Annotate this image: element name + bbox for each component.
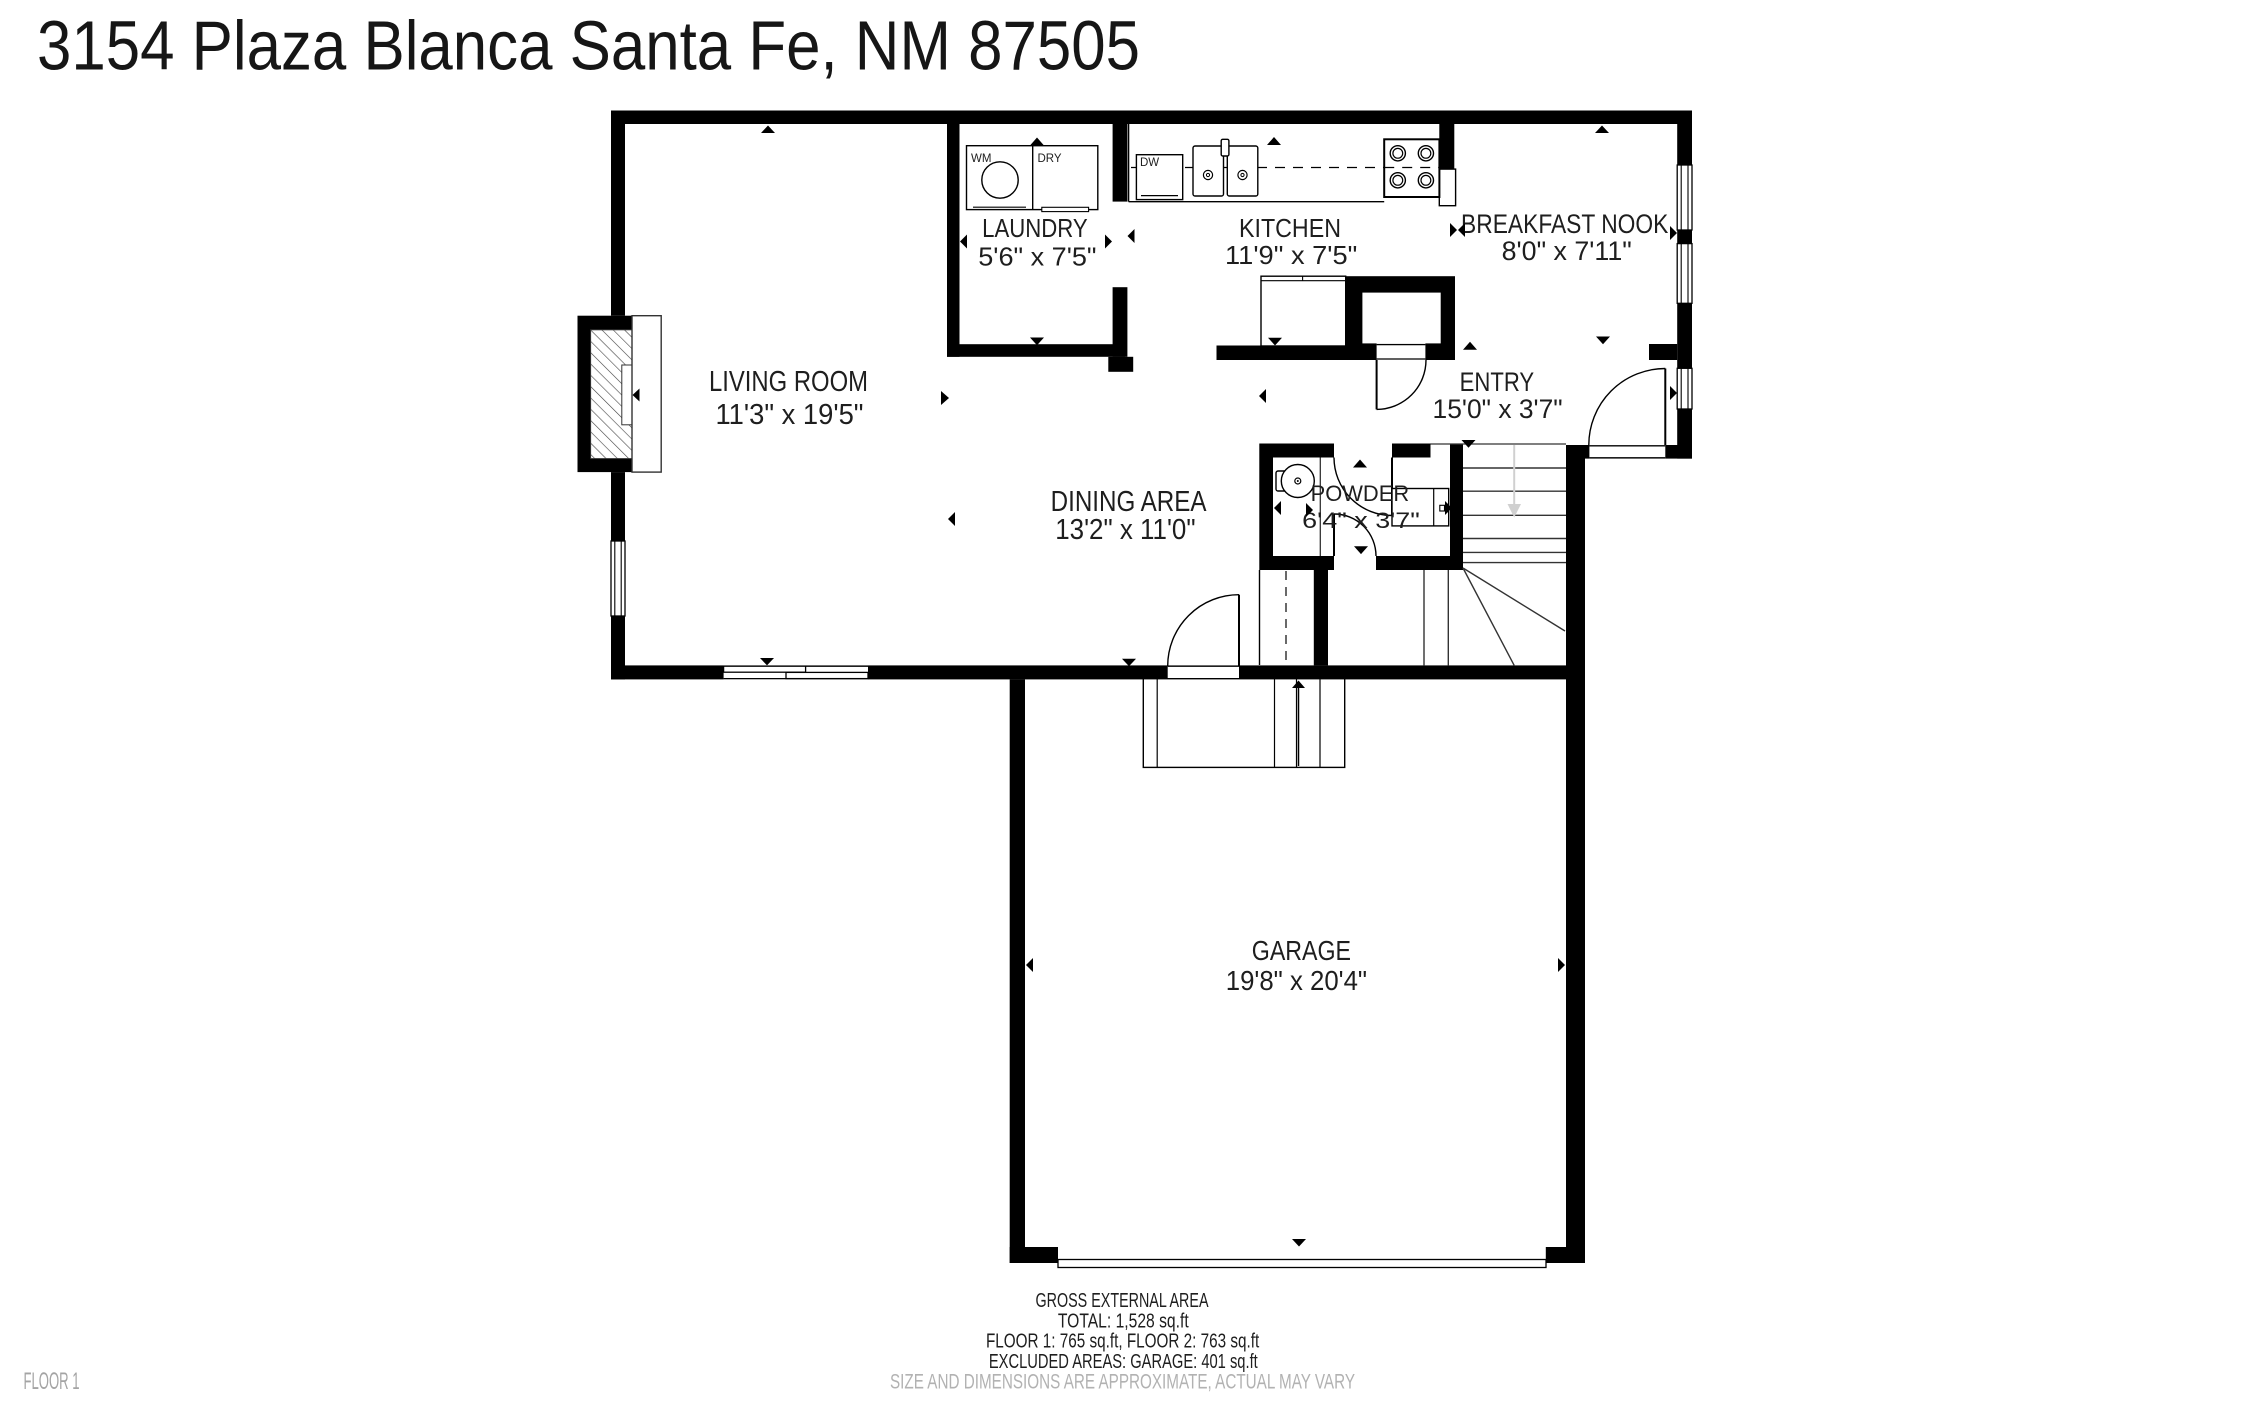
svg-text:8'0" x 7'11": 8'0" x 7'11" bbox=[1502, 236, 1632, 266]
svg-text:19'8" x 20'4": 19'8" x 20'4" bbox=[1226, 965, 1367, 996]
svg-text:DRY: DRY bbox=[1038, 153, 1062, 165]
svg-text:GARAGE: GARAGE bbox=[1252, 935, 1351, 966]
svg-text:SIZE AND DIMENSIONS ARE APPROX: SIZE AND DIMENSIONS ARE APPROXIMATE, ACT… bbox=[890, 1371, 1355, 1394]
svg-text:13'2" x 11'0": 13'2" x 11'0" bbox=[1055, 514, 1195, 546]
svg-text:TOTAL: 1,528 sq.ft: TOTAL: 1,528 sq.ft bbox=[1058, 1311, 1189, 1333]
svg-text:GROSS EXTERNAL AREA: GROSS EXTERNAL AREA bbox=[1036, 1290, 1209, 1312]
svg-text:POWDER: POWDER bbox=[1311, 481, 1410, 506]
svg-text:KITCHEN: KITCHEN bbox=[1239, 213, 1341, 243]
svg-text:ENTRY: ENTRY bbox=[1460, 367, 1535, 397]
svg-text:11'9" x 7'5": 11'9" x 7'5" bbox=[1225, 240, 1357, 270]
svg-text:3154 Plaza Blanca Santa Fe, NM: 3154 Plaza Blanca Santa Fe, NM 87505 bbox=[37, 7, 1140, 85]
svg-text:BREAKFAST NOOK: BREAKFAST NOOK bbox=[1461, 209, 1668, 239]
svg-text:15'0" x 3'7": 15'0" x 3'7" bbox=[1433, 394, 1563, 424]
svg-text:FLOOR 1: FLOOR 1 bbox=[24, 1368, 80, 1395]
svg-text:WM: WM bbox=[971, 153, 991, 165]
svg-text:5'6" x 7'5": 5'6" x 7'5" bbox=[978, 242, 1096, 272]
svg-text:LAUNDRY: LAUNDRY bbox=[982, 213, 1088, 243]
svg-text:DW: DW bbox=[1140, 157, 1159, 169]
svg-text:11'3" x 19'5": 11'3" x 19'5" bbox=[716, 399, 864, 431]
svg-text:FLOOR 1: 765 sq.ft, FLOOR 2: 7: FLOOR 1: 765 sq.ft, FLOOR 2: 763 sq.ft bbox=[986, 1331, 1260, 1353]
svg-text:6'4" x 3'7": 6'4" x 3'7" bbox=[1302, 508, 1420, 533]
svg-text:LIVING ROOM: LIVING ROOM bbox=[709, 366, 868, 398]
